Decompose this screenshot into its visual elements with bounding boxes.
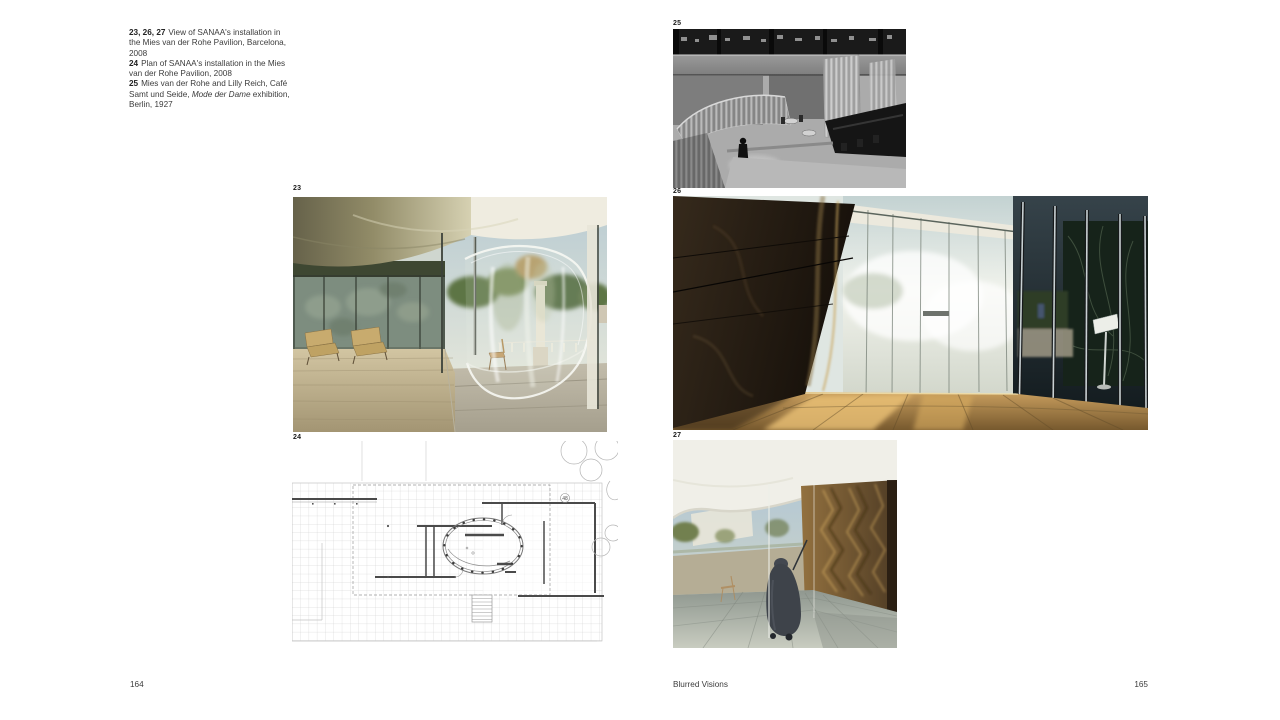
figure-27-photo — [673, 440, 897, 648]
steps — [472, 595, 492, 622]
figure-26-photo — [673, 196, 1148, 430]
figure-25-photo — [673, 29, 906, 188]
figure-24-plan: 48 — [292, 441, 618, 653]
caption-entry-23-26-27: 23, 26, 27View of SANAA's installation i… — [129, 28, 293, 59]
page-number-right: 165 — [1098, 680, 1148, 689]
glass-corridor — [843, 196, 1023, 406]
caption-text: Plan of SANAA's installation in the Mies… — [129, 59, 285, 78]
figure-27-label: 27 — [673, 432, 681, 439]
svg-text:48: 48 — [562, 496, 568, 502]
caption-entry-24: 24Plan of SANAA's installation in the Mi… — [129, 59, 293, 80]
page-number-left: 164 — [130, 680, 144, 689]
figure-23-label: 23 — [293, 185, 301, 192]
figure-26-label: 26 — [673, 188, 681, 195]
door-frame — [587, 225, 598, 409]
caption-fignum: 24 — [129, 59, 138, 68]
caption-text-italic: Mode der Dame — [192, 90, 251, 99]
running-title: Blurred Visions — [673, 680, 728, 689]
caption-block: 23, 26, 27View of SANAA's installation i… — [129, 28, 293, 110]
caption-fignum: 25 — [129, 79, 138, 88]
figure-25-label: 25 — [673, 20, 681, 27]
caption-fignum: 23, 26, 27 — [129, 28, 165, 37]
right-glass-panels — [1013, 196, 1148, 430]
figure-23-photo — [293, 197, 607, 432]
caption-entry-25: 25Mies van der Rohe and Lilly Reich, Caf… — [129, 79, 293, 110]
figure-24-label: 24 — [293, 434, 301, 441]
travertine-floor — [293, 349, 455, 432]
